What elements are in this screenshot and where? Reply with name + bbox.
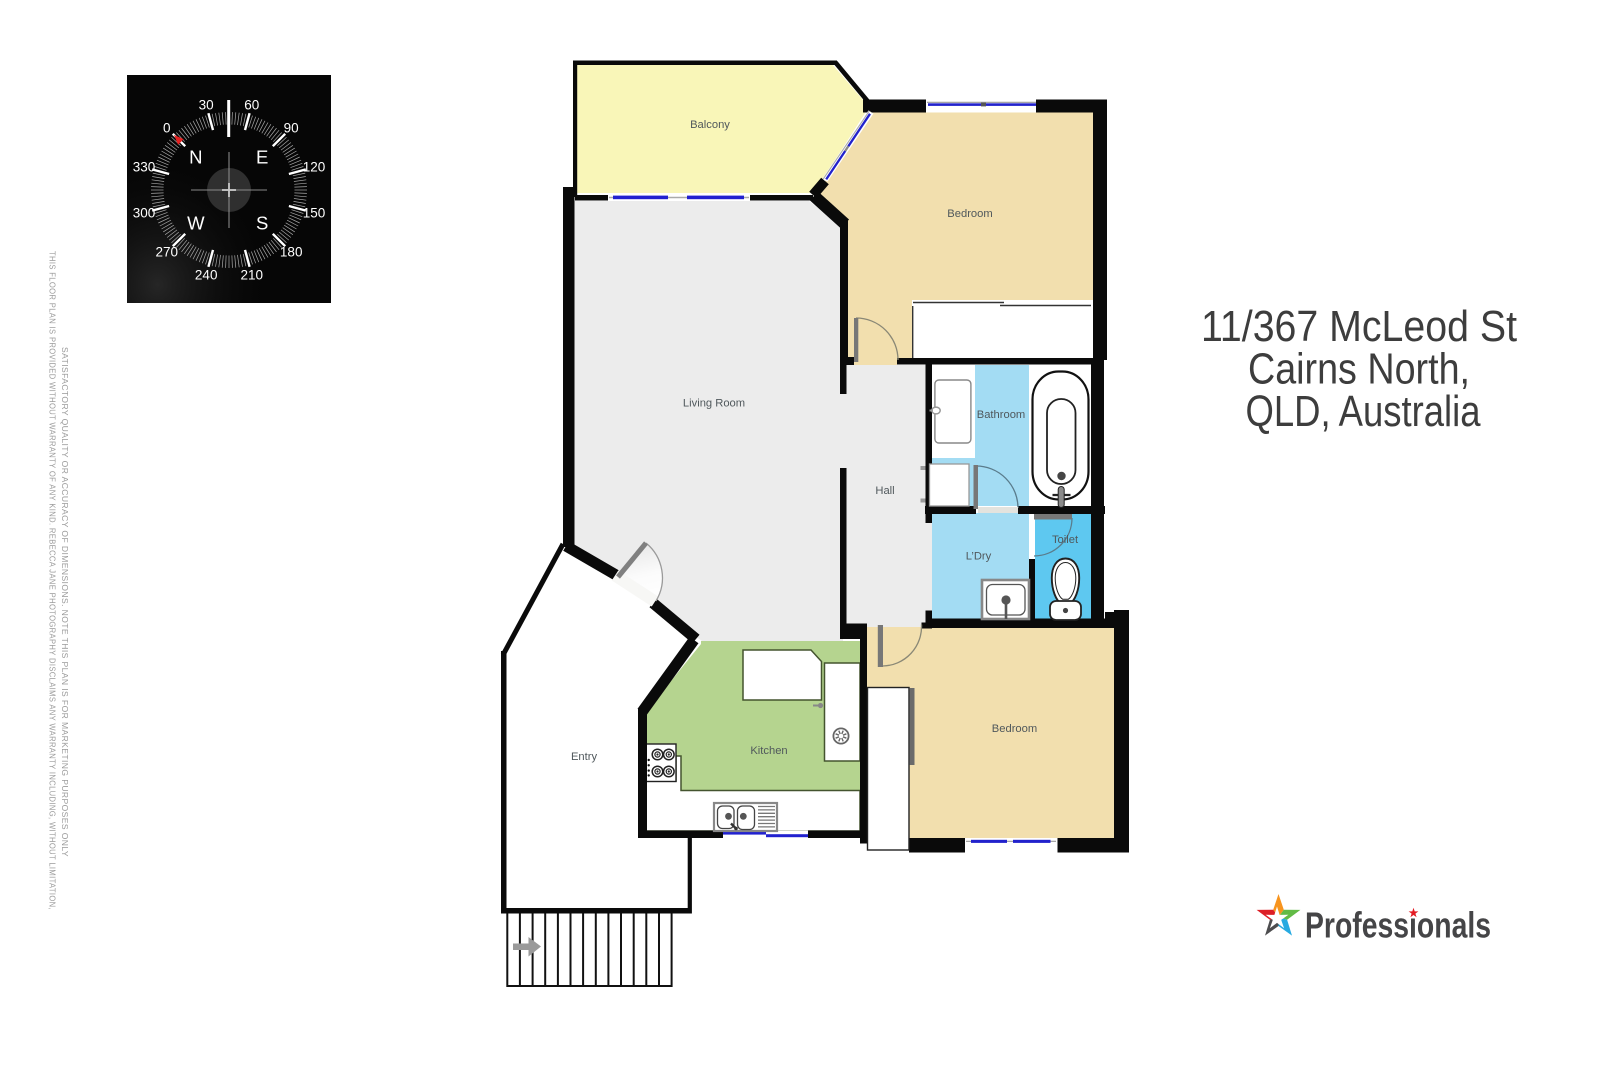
svg-text:120: 120: [303, 160, 326, 175]
svg-text:Bedroom: Bedroom: [992, 723, 1037, 735]
svg-text:Toilet: Toilet: [1052, 534, 1079, 546]
svg-text:W: W: [187, 213, 205, 234]
svg-text:S: S: [256, 213, 268, 234]
svg-text:210: 210: [241, 268, 264, 283]
svg-text:0: 0: [163, 120, 171, 135]
svg-text:330: 330: [133, 160, 156, 175]
svg-text:QLD, Australia: QLD, Australia: [1246, 387, 1481, 436]
svg-text:60: 60: [244, 98, 259, 113]
svg-text:L’Dry: L’Dry: [966, 551, 992, 563]
svg-text:THIS FLOOR PLAN IS PROVIDED WI: THIS FLOOR PLAN IS PROVIDED WITHOUT WARR…: [48, 251, 57, 910]
svg-text:90: 90: [284, 120, 299, 135]
svg-text:Professıonals: Professıonals: [1305, 905, 1491, 946]
svg-text:240: 240: [195, 268, 218, 283]
svg-text:150: 150: [303, 205, 326, 220]
svg-text:180: 180: [280, 245, 303, 260]
svg-text:Kitchen: Kitchen: [750, 745, 787, 757]
svg-text:30: 30: [199, 98, 214, 113]
svg-text:E: E: [256, 146, 268, 167]
svg-text:Hall: Hall: [875, 485, 894, 497]
svg-text:300: 300: [133, 205, 156, 220]
svg-text:Entry: Entry: [571, 751, 598, 763]
svg-text:SATISFACTORY QUALITY OR ACCURA: SATISFACTORY QUALITY OR ACCURACY OF DIME…: [60, 347, 69, 857]
svg-text:Bathroom: Bathroom: [977, 409, 1026, 421]
svg-text:N: N: [189, 146, 202, 167]
svg-text:270: 270: [156, 245, 179, 260]
svg-text:Bedroom: Bedroom: [947, 208, 992, 220]
svg-text:Balcony: Balcony: [690, 119, 730, 131]
svg-text:Living Room: Living Room: [683, 398, 745, 410]
